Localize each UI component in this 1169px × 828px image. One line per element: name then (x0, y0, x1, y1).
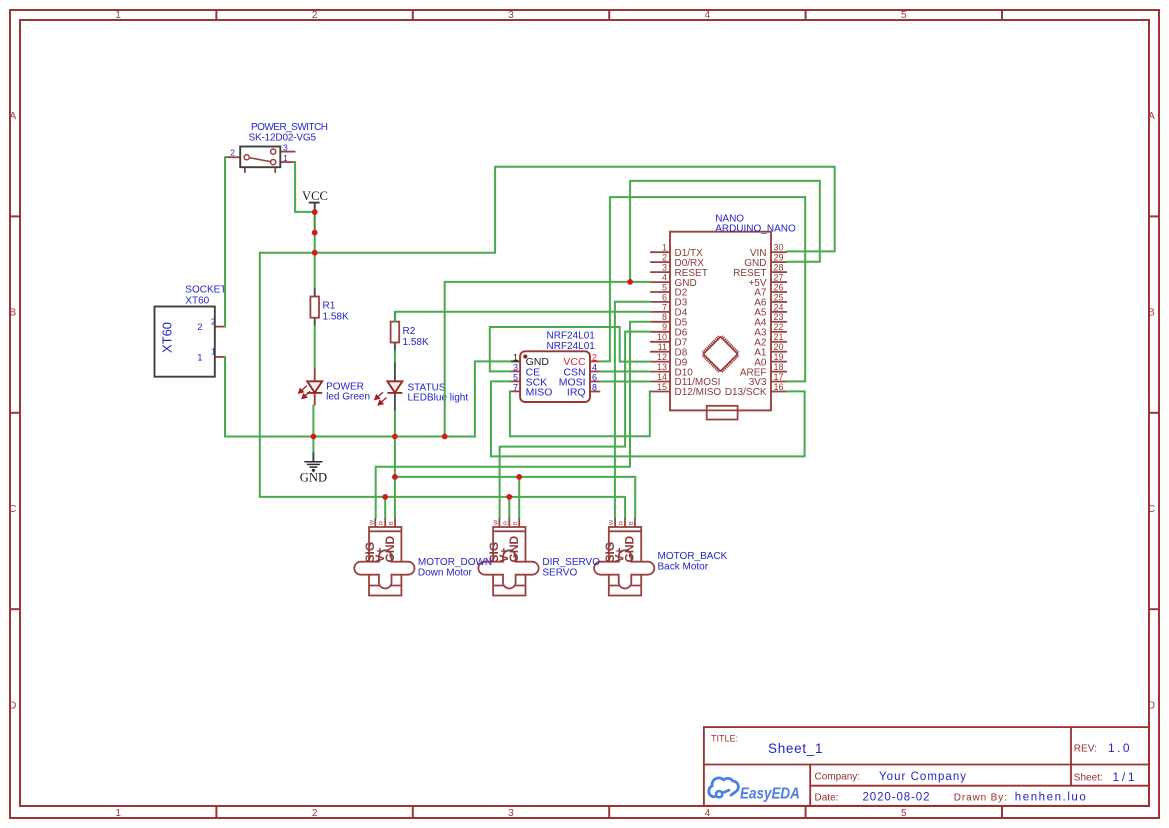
svg-text:NRF24L01: NRF24L01 (547, 341, 596, 352)
svg-text:XT60: XT60 (185, 296, 209, 307)
svg-text:1.58K: 1.58K (403, 337, 429, 348)
svg-text:MOTOR_BACK: MOTOR_BACK (658, 551, 728, 562)
svg-text:8: 8 (662, 312, 667, 322)
svg-text:EasyEDA: EasyEDA (740, 786, 800, 803)
svg-text:5: 5 (513, 373, 518, 383)
svg-text:2: 2 (197, 322, 202, 333)
svg-text:1: 1 (662, 243, 667, 253)
svg-text:1.58K: 1.58K (323, 312, 349, 323)
svg-text:ARDUINO_NANO: ARDUINO_NANO (715, 223, 796, 234)
svg-text:9: 9 (662, 322, 667, 332)
svg-text:11: 11 (658, 342, 667, 352)
svg-text:1: 1 (115, 808, 121, 819)
svg-text:TITLE:: TITLE: (711, 734, 738, 744)
svg-text:1.0: 1.0 (1108, 741, 1130, 755)
svg-text:12: 12 (657, 352, 667, 362)
svg-text:Sheet_1: Sheet_1 (768, 741, 823, 756)
svg-text:B: B (629, 521, 635, 525)
svg-text:GND: GND (623, 536, 637, 563)
svg-text:6: 6 (662, 292, 667, 302)
svg-text:3: 3 (283, 143, 288, 153)
svg-text:SERVO: SERVO (542, 567, 577, 578)
svg-text:1/1: 1/1 (1113, 770, 1135, 784)
svg-text:B: B (9, 308, 16, 319)
svg-text:4: 4 (705, 808, 711, 819)
svg-text:23: 23 (774, 312, 784, 322)
svg-text:5: 5 (662, 282, 667, 292)
svg-text:SOCKET: SOCKET (185, 285, 226, 296)
svg-text:DIR_SERVO: DIR_SERVO (542, 557, 600, 568)
svg-text:22: 22 (774, 322, 784, 332)
svg-text:15: 15 (657, 382, 667, 392)
svg-text:R: R (379, 521, 385, 525)
svg-text:D13/SCK: D13/SCK (725, 387, 767, 398)
svg-text:7: 7 (662, 302, 667, 312)
svg-text:D: D (1148, 700, 1155, 711)
svg-text:30: 30 (774, 243, 784, 253)
svg-text:C: C (9, 504, 16, 515)
svg-text:2: 2 (312, 10, 318, 21)
svg-text:D12/MISO: D12/MISO (675, 387, 722, 398)
svg-text:Date:: Date: (815, 792, 839, 803)
svg-text:29: 29 (774, 253, 784, 263)
svg-text:20: 20 (774, 342, 784, 352)
svg-text:R: R (503, 521, 509, 525)
svg-text:VCC: VCC (302, 189, 328, 203)
svg-text:C: C (1148, 504, 1155, 515)
svg-text:25: 25 (774, 292, 784, 302)
svg-text:B: B (1148, 308, 1155, 319)
svg-text:henhen.luo: henhen.luo (1015, 792, 1086, 804)
svg-text:3: 3 (508, 10, 514, 21)
svg-text:POWER_SWITCH: POWER_SWITCH (251, 122, 328, 133)
svg-text:GND: GND (300, 471, 327, 485)
svg-text:4: 4 (705, 10, 711, 21)
svg-text:2020-08-02: 2020-08-02 (863, 792, 930, 804)
svg-text:B: B (513, 521, 519, 525)
svg-text:19: 19 (774, 352, 784, 362)
svg-text:4: 4 (592, 363, 597, 373)
svg-text:27: 27 (774, 272, 784, 282)
svg-text:D: D (9, 700, 16, 711)
svg-text:A: A (9, 111, 16, 122)
svg-text:XT60: XT60 (160, 322, 175, 353)
svg-text:10: 10 (657, 332, 667, 342)
svg-text:W: W (369, 519, 375, 525)
svg-text:Back Motor: Back Motor (658, 561, 709, 572)
svg-text:3: 3 (662, 263, 667, 273)
svg-text:21: 21 (774, 332, 784, 342)
svg-text:3: 3 (513, 363, 518, 373)
svg-text:5: 5 (901, 10, 907, 21)
svg-text:1: 1 (211, 347, 216, 357)
svg-text:R1: R1 (323, 301, 336, 312)
svg-text:24: 24 (774, 302, 784, 312)
svg-text:3: 3 (508, 808, 514, 819)
svg-text:1: 1 (115, 10, 121, 21)
svg-text:2: 2 (230, 148, 235, 158)
svg-text:18: 18 (774, 362, 784, 372)
svg-text:6: 6 (592, 373, 597, 383)
svg-text:MOTOR_DOWN: MOTOR_DOWN (418, 557, 492, 568)
svg-text:Company:: Company: (815, 772, 861, 783)
svg-text:4: 4 (662, 272, 667, 282)
svg-text:MISO: MISO (526, 386, 553, 398)
svg-text:Your Company: Your Company (879, 771, 966, 783)
svg-text:14: 14 (657, 372, 667, 382)
svg-text:IRQ: IRQ (567, 386, 586, 398)
svg-text:Sheet:: Sheet: (1074, 773, 1103, 784)
svg-text:Down Motor: Down Motor (418, 567, 473, 578)
svg-text:SK-12D02-VG5: SK-12D02-VG5 (249, 133, 317, 144)
svg-text:2: 2 (592, 352, 597, 362)
svg-text:B: B (389, 521, 395, 525)
svg-text:8: 8 (592, 383, 597, 393)
svg-text:Drawn By:: Drawn By: (954, 792, 1007, 803)
svg-text:led Green: led Green (326, 392, 370, 403)
svg-text:R: R (619, 521, 625, 525)
svg-text:1: 1 (283, 153, 288, 163)
svg-text:GND: GND (383, 536, 397, 563)
svg-text:1: 1 (197, 352, 202, 363)
svg-text:17: 17 (774, 372, 784, 382)
svg-text:R2: R2 (403, 326, 416, 337)
svg-text:A: A (1148, 111, 1155, 122)
svg-text:W: W (609, 519, 615, 525)
svg-text:16: 16 (774, 382, 784, 392)
svg-text:13: 13 (657, 362, 667, 372)
svg-text:REV:: REV: (1074, 744, 1097, 755)
svg-text:2: 2 (312, 808, 318, 819)
svg-text:28: 28 (774, 263, 784, 273)
svg-text:2: 2 (211, 316, 216, 326)
svg-text:5: 5 (901, 808, 907, 819)
svg-text:1: 1 (513, 352, 518, 362)
svg-text:26: 26 (774, 282, 784, 292)
svg-text:2: 2 (662, 253, 667, 263)
svg-text:7: 7 (513, 383, 518, 393)
svg-text:NRF24L01: NRF24L01 (547, 331, 596, 342)
svg-text:W: W (493, 519, 499, 525)
svg-text:GND: GND (507, 536, 521, 563)
svg-text:LEDBlue light: LEDBlue light (408, 392, 469, 403)
